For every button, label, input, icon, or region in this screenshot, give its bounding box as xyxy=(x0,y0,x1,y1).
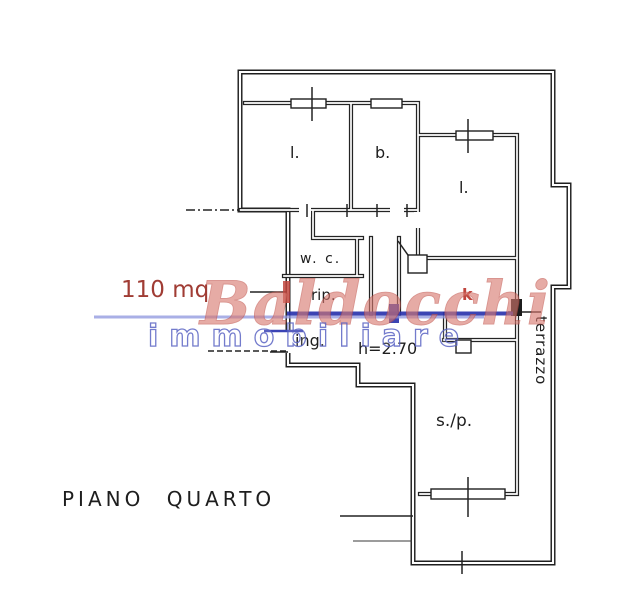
room-label-l-top-left: l. xyxy=(290,143,300,162)
floorplan-scan: l. b. l. w. c. rip. ing. k s./p. terrazz… xyxy=(0,0,632,607)
room-label-wc: w. c. xyxy=(300,251,341,267)
floor-title: PIANO QUARTO xyxy=(62,487,275,511)
area-label: 110 mq xyxy=(121,277,209,303)
floorplan-drawing: l. b. l. w. c. rip. ing. k s./p. terrazz… xyxy=(0,0,632,607)
room-label-sp: s./p. xyxy=(436,411,472,431)
room-label-b: b. xyxy=(375,143,390,162)
watermark-subtitle: immobiliare xyxy=(148,319,470,354)
room-label-l-right: l. xyxy=(459,178,469,197)
